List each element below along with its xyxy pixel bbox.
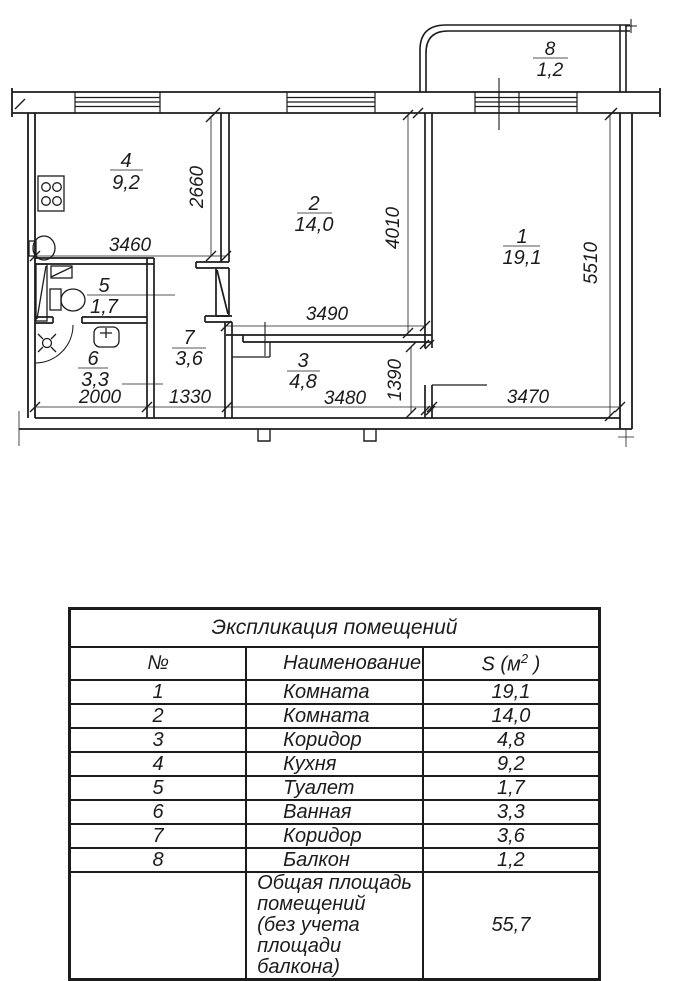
- row-name: Туалет: [246, 776, 423, 800]
- fixtures: [29, 176, 119, 363]
- windows: [75, 78, 577, 130]
- shaft-icon: [36, 264, 47, 321]
- row-area: 1,7: [423, 776, 600, 800]
- wall-kitchen-room2: [221, 113, 229, 262]
- right-wall: [620, 113, 632, 429]
- vent-stub-right: [364, 429, 376, 441]
- total-label-line2: (без учета площади балкона): [257, 915, 422, 978]
- total-label-line1: Общая площадь помещений: [257, 873, 422, 915]
- row-name: Ванная: [246, 800, 423, 824]
- column-header-area: S (м2 ): [423, 647, 600, 680]
- washbasin-icon: [94, 327, 119, 347]
- row-area: 4,8: [423, 728, 600, 752]
- dim-3480: 3480: [324, 388, 367, 409]
- row-number: 5: [70, 776, 247, 800]
- dim-3460: 3460: [109, 235, 152, 256]
- light-icon: [38, 334, 56, 352]
- row-number: 7: [70, 824, 247, 848]
- floor-plan: 4 9,2 2 14,0 1 19,1 8 1,2 5 1,7 6 3,3 7 …: [0, 0, 696, 535]
- row-name: Балкон: [246, 848, 423, 872]
- total-area-value: 55,7: [423, 872, 600, 980]
- table-title: Экспликация помещений: [70, 609, 600, 648]
- row-name: Коридор: [246, 824, 423, 848]
- row-area: 14,0: [423, 704, 600, 728]
- row-name: Комната: [246, 704, 423, 728]
- room1-area: 19,1: [503, 247, 542, 269]
- wall-room1-left: [425, 113, 432, 418]
- row-name: Кухня: [246, 752, 423, 776]
- room2-number: 2: [307, 193, 319, 215]
- row-area: 3,6: [423, 824, 600, 848]
- room3-area: 4,8: [289, 371, 317, 393]
- room2-area: 14,0: [295, 214, 334, 236]
- window-room2: [287, 92, 375, 113]
- area-unit-post: ): [528, 653, 540, 675]
- wall-bath-top: [35, 258, 154, 264]
- row-number: 4: [70, 752, 247, 776]
- room8-number: 8: [545, 39, 556, 60]
- bottom-wall: [19, 418, 632, 429]
- window-kitchen: [75, 92, 160, 113]
- row-area: 3,3: [423, 800, 600, 824]
- table-row: 4 Кухня 9,2: [70, 752, 600, 776]
- left-wall: [28, 113, 35, 418]
- room5-number: 5: [98, 275, 110, 297]
- room4-area: 9,2: [112, 172, 140, 194]
- room3-number: 3: [297, 350, 308, 372]
- room7-number: 7: [183, 327, 195, 349]
- door-leaf-room2: [232, 342, 270, 357]
- area-unit-sup: 2: [521, 651, 528, 666]
- dim-5510: 5510: [581, 241, 602, 284]
- wall-bath-right: [147, 258, 154, 418]
- vent-stub-left: [258, 429, 270, 441]
- vent-box-icon: [51, 266, 72, 278]
- room4-number: 4: [120, 150, 131, 172]
- row-number: 8: [70, 848, 247, 872]
- total-label: Общая площадь помещений (без учета площа…: [246, 872, 423, 980]
- room8-area: 1,2: [537, 60, 564, 81]
- dim-1390: 1390: [385, 358, 406, 401]
- row-number: 6: [70, 800, 247, 824]
- wall-room2-bottom: [226, 335, 432, 342]
- table-row: 8 Балкон 1,2: [70, 848, 600, 872]
- table-row: 7 Коридор 3,6: [70, 824, 600, 848]
- column-header-number: №: [70, 647, 247, 680]
- room7-area: 3,6: [175, 348, 204, 370]
- dim-2000: 2000: [78, 387, 122, 408]
- area-unit-pre: S (м: [482, 653, 521, 675]
- toilet-icon: [50, 289, 85, 311]
- stove-icon: [38, 176, 64, 211]
- table-row: 1 Комната 19,1: [70, 680, 600, 704]
- table-row: 2 Комната 14,0: [70, 704, 600, 728]
- kitchen-door-jamb-bottom: [205, 316, 232, 322]
- window-balcony-block: [475, 92, 577, 113]
- row-area: 1,2: [423, 848, 600, 872]
- explication-table: Экспликация помещений № Наименование S (…: [68, 607, 601, 981]
- dim-1330: 1330: [169, 387, 212, 408]
- table-row: 3 Коридор 4,8: [70, 728, 600, 752]
- room6-number: 6: [87, 348, 99, 370]
- table-row: 6 Ванная 3,3: [70, 800, 600, 824]
- dim-2660: 2660: [187, 165, 208, 209]
- row-number: 1: [70, 680, 247, 704]
- balcony-railing: [420, 19, 637, 92]
- row-area: 19,1: [423, 680, 600, 704]
- bath-door-arc: [35, 325, 73, 363]
- row-name: Коридор: [246, 728, 423, 752]
- table-total-row: Общая площадь помещений (без учета площа…: [70, 872, 600, 980]
- total-empty-cell: [70, 872, 247, 980]
- column-header-name: Наименование: [246, 647, 423, 680]
- room5-area: 1,7: [90, 296, 119, 318]
- kitchen-door-leaf: [216, 268, 229, 316]
- room1-number: 1: [516, 226, 527, 248]
- row-number: 2: [70, 704, 247, 728]
- dim-4010: 4010: [383, 206, 404, 249]
- dim-3490: 3490: [306, 304, 349, 325]
- row-name: Комната: [246, 680, 423, 704]
- kitchen-door-jamb-top: [196, 262, 229, 268]
- row-area: 9,2: [423, 752, 600, 776]
- row-number: 3: [70, 728, 247, 752]
- table-row: 5 Туалет 1,7: [70, 776, 600, 800]
- dim-3470: 3470: [507, 387, 550, 408]
- dimension-labels: 3460 3490 2000 1330 3480 3470 2660 4010 …: [78, 165, 602, 409]
